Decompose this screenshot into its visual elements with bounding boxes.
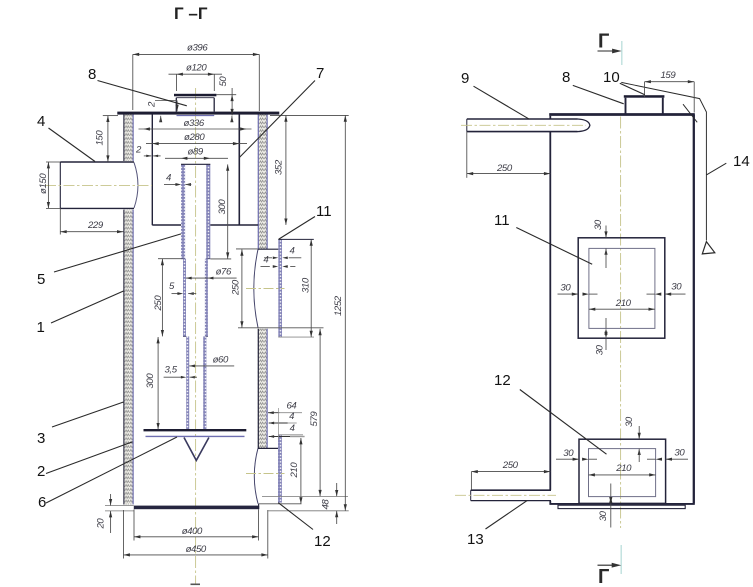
svg-text:150: 150 [95, 130, 106, 146]
svg-text:8: 8 [88, 66, 96, 83]
svg-text:ø76: ø76 [216, 266, 232, 277]
svg-text:159: 159 [661, 70, 677, 81]
svg-text:ø120: ø120 [186, 63, 207, 74]
svg-text:229: 229 [87, 220, 104, 231]
svg-text:4: 4 [263, 255, 268, 266]
svg-text:6: 6 [38, 494, 46, 511]
svg-text:30: 30 [624, 416, 635, 427]
svg-text:7: 7 [316, 65, 324, 82]
svg-text:250: 250 [230, 279, 241, 296]
svg-text:30: 30 [560, 282, 571, 293]
svg-text:30: 30 [671, 282, 682, 293]
svg-text:210: 210 [615, 463, 632, 474]
svg-text:2: 2 [37, 463, 45, 480]
svg-text:48: 48 [320, 499, 331, 510]
svg-text:4: 4 [37, 113, 45, 130]
svg-text:250: 250 [153, 295, 164, 312]
svg-text:1: 1 [37, 319, 45, 336]
svg-text:30: 30 [593, 219, 604, 230]
svg-text:30: 30 [594, 344, 605, 355]
svg-text:14: 14 [733, 153, 750, 170]
svg-text:4: 4 [289, 411, 294, 422]
svg-text:Г –Г: Г –Г [174, 4, 208, 23]
svg-text:Г: Г [598, 31, 609, 53]
svg-text:300: 300 [145, 373, 156, 389]
svg-text:210: 210 [615, 298, 632, 309]
svg-text:Г: Г [598, 566, 609, 587]
svg-text:4: 4 [290, 423, 295, 434]
svg-text:11: 11 [494, 212, 510, 229]
svg-text:ø450: ø450 [186, 544, 207, 555]
svg-text:4: 4 [166, 173, 171, 184]
svg-text:11: 11 [316, 203, 332, 220]
svg-text:20: 20 [96, 518, 107, 530]
svg-text:300: 300 [217, 199, 228, 215]
svg-text:ø280: ø280 [184, 132, 205, 143]
svg-text:210: 210 [289, 462, 300, 479]
svg-text:352: 352 [274, 159, 285, 175]
svg-text:ø60: ø60 [213, 354, 229, 365]
svg-text:8: 8 [562, 69, 570, 86]
svg-text:ø400: ø400 [182, 526, 203, 537]
svg-text:310: 310 [300, 277, 311, 293]
svg-text:ø89: ø89 [188, 147, 204, 158]
svg-text:4: 4 [290, 246, 295, 257]
svg-text:30: 30 [674, 447, 685, 458]
svg-text:ø150: ø150 [38, 173, 49, 194]
svg-text:50: 50 [218, 76, 229, 87]
svg-text:12: 12 [494, 372, 511, 389]
svg-text:13: 13 [467, 531, 484, 548]
svg-text:ø336: ø336 [184, 118, 205, 129]
svg-text:9: 9 [461, 70, 469, 87]
svg-text:250: 250 [496, 163, 513, 174]
svg-text:250: 250 [502, 460, 519, 471]
svg-text:64: 64 [287, 400, 297, 411]
svg-text:579: 579 [309, 411, 320, 427]
svg-text:3,5: 3,5 [165, 364, 178, 375]
svg-text:30: 30 [563, 448, 574, 459]
svg-text:30: 30 [598, 510, 609, 521]
svg-text:1252: 1252 [333, 295, 344, 316]
svg-text:5: 5 [37, 271, 45, 288]
svg-text:12: 12 [314, 533, 331, 550]
svg-text:3: 3 [37, 430, 45, 447]
svg-text:ø396: ø396 [187, 43, 208, 54]
svg-text:10: 10 [603, 69, 620, 86]
